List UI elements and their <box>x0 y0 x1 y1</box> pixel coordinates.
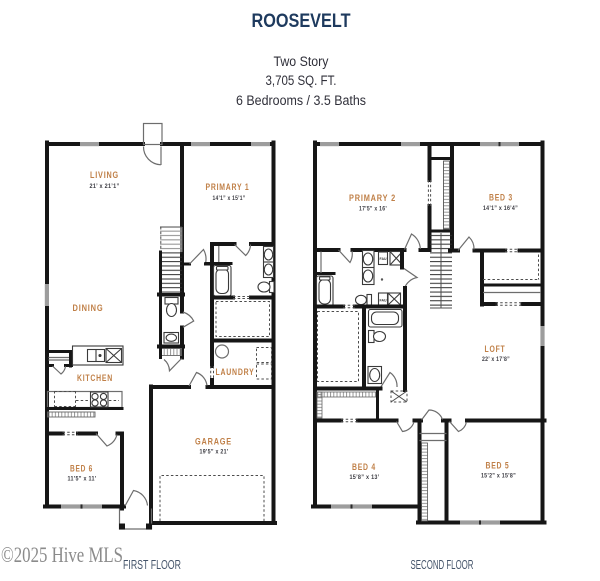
svg-text:LOFT: LOFT <box>485 344 506 354</box>
svg-text:PRIMARY 2: PRIMARY 2 <box>349 193 396 203</box>
svg-text:FAU: FAU <box>380 299 387 303</box>
svg-text:©2025 Hive MLS: ©2025 Hive MLS <box>1 542 123 567</box>
svg-text:6 Bedrooms / 3.5 Baths: 6 Bedrooms / 3.5 Baths <box>236 93 366 108</box>
svg-text:SECOND FLOOR: SECOND FLOOR <box>411 558 474 572</box>
svg-text:14’1” x 16’4”: 14’1” x 16’4” <box>483 206 518 212</box>
svg-text:LIVING: LIVING <box>90 170 119 180</box>
svg-text:FIRST FLOOR: FIRST FLOOR <box>123 558 181 572</box>
svg-text:17’5” x 16’: 17’5” x 16’ <box>359 207 387 213</box>
svg-text:GARAGE: GARAGE <box>195 437 232 447</box>
svg-text:ROOSEVELT: ROOSEVELT <box>252 11 351 32</box>
svg-text:LAUNDRY: LAUNDRY <box>216 367 255 377</box>
svg-text:11’5” x 11’: 11’5” x 11’ <box>68 477 97 483</box>
svg-text:BED 4: BED 4 <box>352 462 376 472</box>
svg-text:KITCHEN: KITCHEN <box>77 373 113 383</box>
svg-text:19’5” x 21’: 19’5” x 21’ <box>200 450 229 456</box>
svg-text:15’2” x 15’8”: 15’2” x 15’8” <box>481 474 516 480</box>
svg-text:BED 3: BED 3 <box>489 193 513 203</box>
svg-text:15’8” x 13’: 15’8” x 13’ <box>350 475 380 481</box>
svg-text:22’ x 17’8”: 22’ x 17’8” <box>482 357 510 363</box>
svg-text:3,705 SQ. FT.: 3,705 SQ. FT. <box>266 73 337 88</box>
svg-text:14’1” x 15’1”: 14’1” x 15’1” <box>213 196 246 202</box>
svg-text:21’ x 21’1”: 21’ x 21’1” <box>90 184 120 190</box>
svg-text:BED 6: BED 6 <box>70 464 93 474</box>
svg-text:PRIMARY 1: PRIMARY 1 <box>206 182 250 192</box>
svg-text:BED 5: BED 5 <box>486 461 510 471</box>
svg-text:DINING: DINING <box>73 303 104 313</box>
svg-text:FAU: FAU <box>380 257 387 261</box>
svg-text:Two Story: Two Story <box>274 54 329 69</box>
